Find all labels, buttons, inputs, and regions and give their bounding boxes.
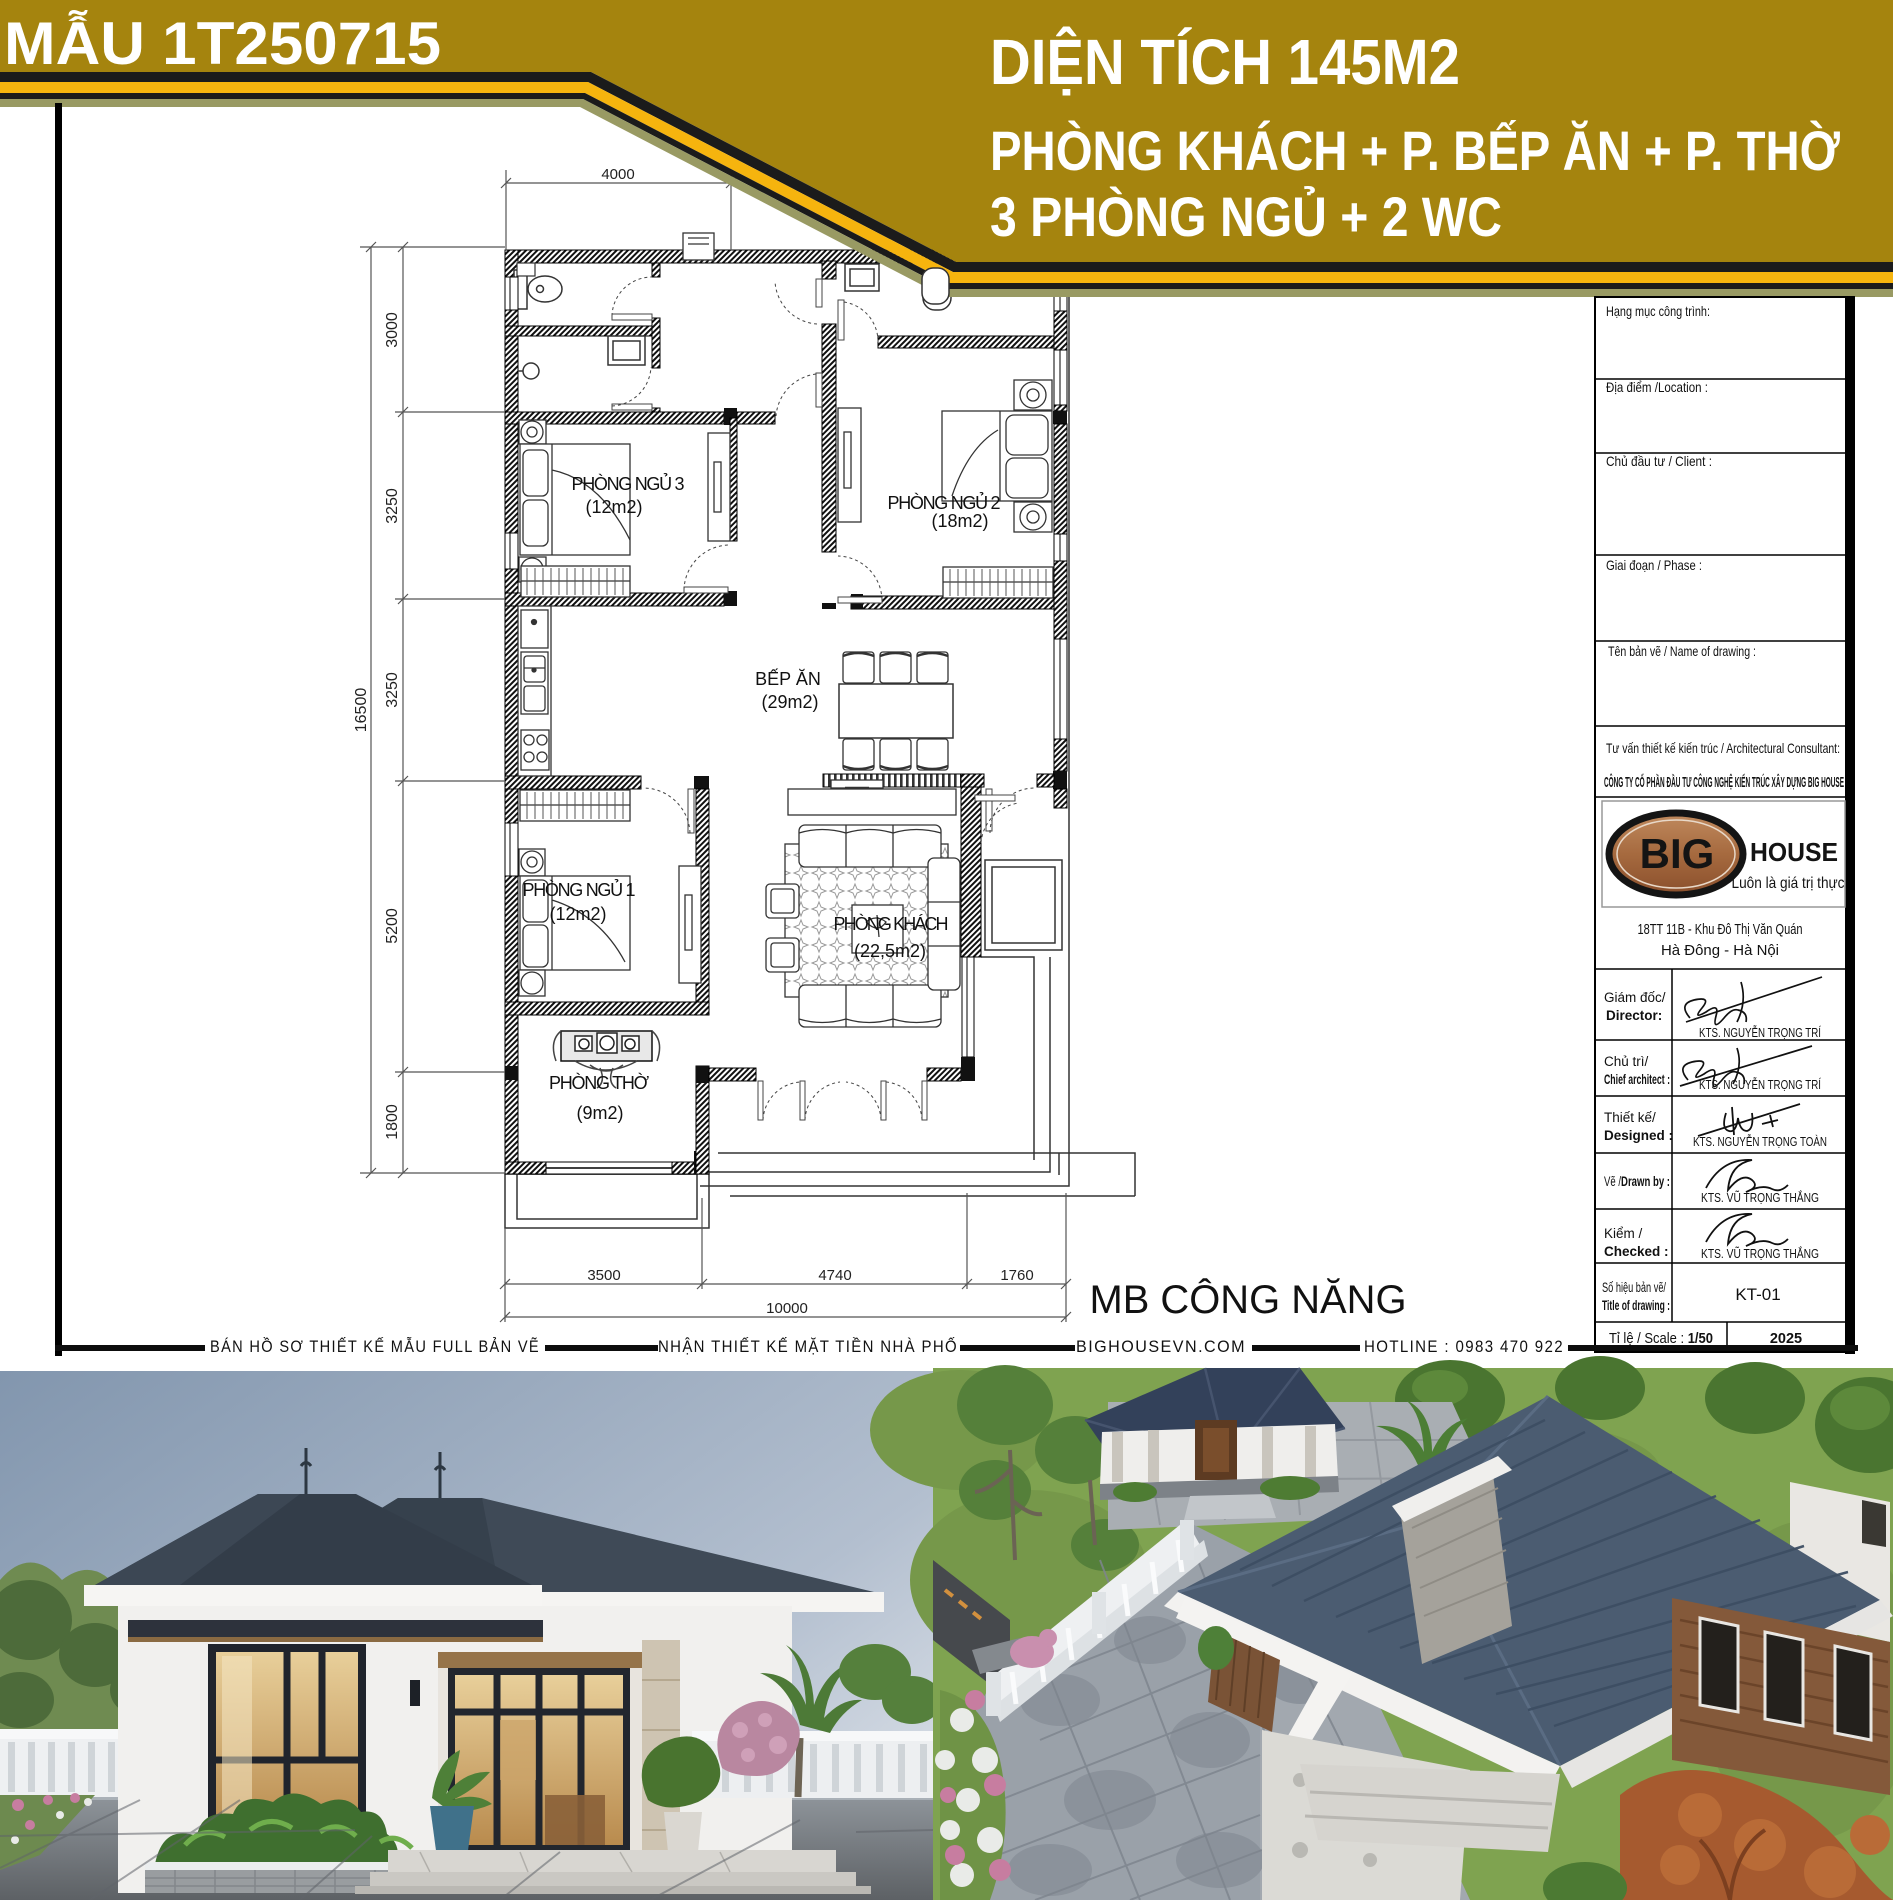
svg-text:3 PHÒNG NGỦ + 2 WC: 3 PHÒNG NGỦ + 2 WC — [990, 185, 1502, 248]
svg-text:BẾP ĂN: BẾP ĂN — [755, 668, 821, 689]
svg-text:Giám đốc/: Giám đốc/ — [1604, 990, 1666, 1005]
svg-text:(29m2): (29m2) — [761, 692, 818, 712]
svg-text:KTS. NGUYỄN TRỌNG TOÀN: KTS. NGUYỄN TRỌNG TOÀN — [1693, 1134, 1827, 1149]
svg-text:(12m2): (12m2) — [549, 904, 606, 924]
svg-text:1760: 1760 — [1000, 1267, 1033, 1284]
svg-text:Hạng mục công trình:: Hạng mục công trình: — [1606, 303, 1710, 319]
svg-text:Director:: Director: — [1606, 1008, 1662, 1023]
svg-text:Luôn là giá trị thực: Luôn là giá trị thực — [1732, 875, 1845, 892]
svg-text:Chủ trì/: Chủ trì/ — [1604, 1054, 1649, 1069]
svg-text:3500: 3500 — [587, 1267, 620, 1284]
svg-text:NHẬN THIẾT KẾ MẶT TIỀN NHÀ PHỐ: NHẬN THIẾT KẾ MẶT TIỀN NHÀ PHỐ — [658, 1336, 958, 1356]
svg-text:(9m2): (9m2) — [576, 1103, 623, 1123]
svg-text:Hà Đông - Hà Nội: Hà Đông - Hà Nội — [1661, 943, 1779, 959]
svg-text:KTS. VŨ TRỌNG THẮNG: KTS. VŨ TRỌNG THẮNG — [1701, 1190, 1819, 1205]
svg-text:5200: 5200 — [384, 908, 401, 944]
svg-text:PHÒNG NGỦ 3: PHÒNG NGỦ 3 — [572, 473, 685, 494]
svg-text:PHÒNG NGỦ 2: PHÒNG NGỦ 2 — [888, 492, 1001, 513]
svg-text:HOUSE: HOUSE — [1750, 837, 1838, 867]
svg-text:Title of drawing :: Title of drawing : — [1602, 1298, 1670, 1313]
svg-text:3000: 3000 — [384, 312, 401, 348]
svg-text:KTS. NGUYỄN TRỌNG TRÍ: KTS. NGUYỄN TRỌNG TRÍ — [1699, 1025, 1821, 1040]
svg-text:Tên bản vẽ / Name of drawing :: Tên bản vẽ / Name of drawing : — [1608, 643, 1756, 659]
svg-text:(12m2): (12m2) — [585, 497, 642, 517]
svg-text:BIGHOUSEVN.COM: BIGHOUSEVN.COM — [1076, 1338, 1246, 1356]
svg-text:4740: 4740 — [818, 1267, 851, 1284]
svg-text:1800: 1800 — [384, 1104, 401, 1140]
svg-text:Vẽ /Drawn by :: Vẽ /Drawn by : — [1604, 1174, 1670, 1189]
svg-text:Địa điểm /Location :: Địa điểm /Location : — [1606, 379, 1708, 395]
svg-text:BÁN HỒ SƠ THIẾT KẾ MẪU FULL BẢ: BÁN HỒ SƠ THIẾT KẾ MẪU FULL BẢN VẼ — [210, 1336, 540, 1356]
svg-text:Chủ đầu tư / Client :: Chủ đầu tư / Client : — [1606, 453, 1712, 469]
svg-text:MẪU 1T250715: MẪU 1T250715 — [4, 10, 441, 77]
svg-text:KTS. VŨ TRỌNG THẮNG: KTS. VŨ TRỌNG THẮNG — [1701, 1246, 1819, 1261]
svg-text:HOTLINE : 0983 470 922: HOTLINE : 0983 470 922 — [1364, 1338, 1564, 1356]
svg-text:PHÒNG KHÁCH: PHÒNG KHÁCH — [834, 913, 949, 934]
svg-text:DIỆN TÍCH 145M2: DIỆN TÍCH 145M2 — [990, 25, 1460, 98]
svg-text:(18m2): (18m2) — [931, 511, 988, 531]
svg-text:Tỉ lệ / Scale : 1/50: Tỉ lệ / Scale : 1/50 — [1609, 1331, 1713, 1347]
svg-text:BIG: BIG — [1640, 830, 1715, 877]
svg-text:3250: 3250 — [384, 488, 401, 524]
svg-text:PHÒNG KHÁCH + P. BẾP ĂN + P. T: PHÒNG KHÁCH + P. BẾP ĂN + P. THỜ — [990, 119, 1840, 182]
svg-text:PHÒNG NGỦ 1: PHÒNG NGỦ 1 — [523, 879, 636, 900]
svg-text:18TT 11B - Khu Đô Thị Văn Quán: 18TT 11B - Khu Đô Thị Văn Quán — [1638, 922, 1803, 938]
svg-text:Chief architect :: Chief architect : — [1604, 1072, 1670, 1087]
svg-text:Kiểm /: Kiểm / — [1604, 1226, 1643, 1241]
svg-text:2025: 2025 — [1770, 1331, 1802, 1347]
svg-text:CÔNG TY CỔ PHẦN ĐẦU TƯ CÔNG NG: CÔNG TY CỔ PHẦN ĐẦU TƯ CÔNG NGHỆ KIẾN TR… — [1604, 773, 1844, 791]
svg-text:Giai đoạn / Phase :: Giai đoạn / Phase : — [1606, 557, 1702, 573]
svg-text:10000: 10000 — [766, 1300, 808, 1317]
svg-text:3250: 3250 — [384, 672, 401, 708]
svg-text:Thiết kế/: Thiết kế/ — [1604, 1110, 1656, 1125]
svg-text:MB CÔNG NĂNG: MB CÔNG NĂNG — [1090, 1277, 1407, 1322]
svg-text:Designed :: Designed : — [1604, 1128, 1673, 1143]
svg-text:Checked :: Checked : — [1604, 1244, 1669, 1259]
svg-text:(22,5m2): (22,5m2) — [854, 941, 926, 961]
svg-text:Số hiệu bản vẽ/: Số hiệu bản vẽ/ — [1602, 1280, 1666, 1295]
svg-text:4000: 4000 — [601, 166, 634, 183]
svg-text:Tư vấn thiết kế kiến trúc / Ar: Tư vấn thiết kế kiến trúc / Architectura… — [1606, 740, 1840, 756]
svg-text:16500: 16500 — [353, 688, 370, 733]
svg-text:KT-01: KT-01 — [1735, 1285, 1780, 1304]
svg-text:PHÒNG THỜ: PHÒNG THỜ — [549, 1072, 650, 1093]
